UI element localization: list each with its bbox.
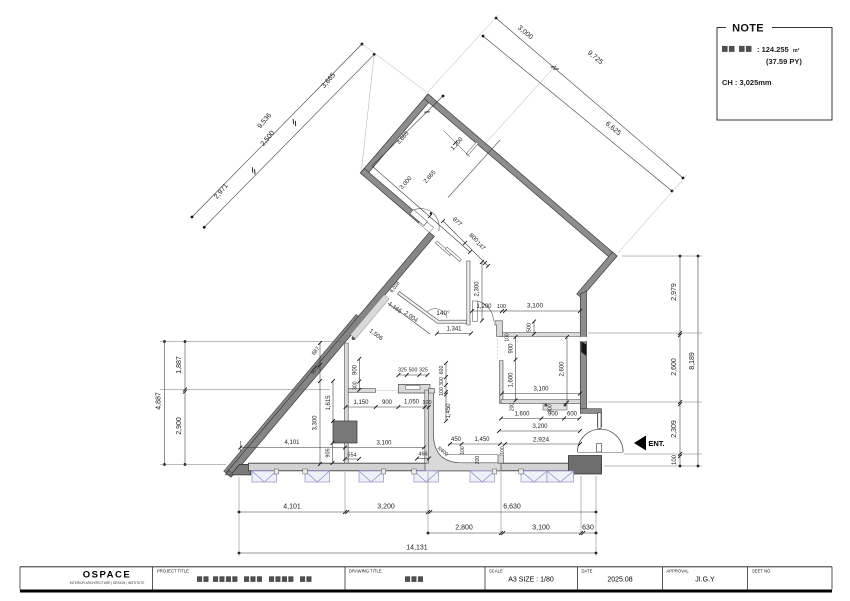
svg-text:1,150: 1,150 (353, 400, 369, 406)
svg-text:APPROVAL: APPROVAL (667, 569, 690, 574)
svg-text:3,300: 3,300 (313, 415, 319, 431)
svg-text:1,050: 1,050 (404, 400, 420, 406)
svg-text:1,600: 1,600 (514, 412, 530, 418)
svg-text:2025.08: 2025.08 (607, 577, 632, 584)
svg-text:900: 900 (548, 412, 559, 418)
svg-text:100: 100 (460, 446, 466, 455)
svg-text:3,100: 3,100 (376, 441, 392, 447)
svg-text:m²: m² (793, 48, 800, 54)
svg-text:500: 500 (409, 368, 418, 374)
svg-text:300: 300 (439, 377, 445, 386)
svg-text:3,200: 3,200 (532, 424, 548, 430)
svg-text:4,101: 4,101 (283, 504, 301, 511)
svg-text:100: 100 (672, 454, 678, 465)
svg-text:905: 905 (326, 448, 332, 457)
svg-text:6,630: 6,630 (503, 504, 521, 511)
svg-text:3,100: 3,100 (527, 303, 544, 310)
svg-text:CH : 3,025mm: CH : 3,025mm (722, 78, 772, 87)
svg-text:2,600: 2,600 (560, 361, 566, 377)
svg-text:325: 325 (398, 368, 407, 374)
svg-text:100: 100 (505, 333, 511, 342)
svg-text:300: 300 (353, 381, 359, 390)
svg-text:100: 100 (439, 387, 445, 396)
svg-text:1,200: 1,200 (476, 304, 492, 310)
svg-text:SCALE: SCALE (489, 569, 503, 574)
svg-text:4,101: 4,101 (284, 440, 300, 446)
svg-text:2,979: 2,979 (671, 283, 678, 301)
svg-text:325: 325 (419, 368, 428, 374)
svg-text:600: 600 (439, 366, 445, 375)
svg-text:DRAWING TITLE: DRAWING TITLE (349, 569, 382, 574)
svg-text:2,309: 2,309 (671, 420, 678, 438)
svg-text:SEET NO.: SEET NO. (752, 569, 771, 574)
svg-text:2,800: 2,800 (455, 525, 473, 532)
svg-text:(37.59 PY): (37.59 PY) (766, 57, 802, 66)
svg-text:4,887: 4,887 (156, 392, 163, 410)
svg-text:3,100: 3,100 (533, 387, 549, 393)
svg-text:200: 200 (510, 403, 516, 412)
svg-text:100: 100 (497, 304, 506, 310)
svg-text:JI.G.Y: JI.G.Y (695, 577, 715, 584)
svg-text:: 124.255: : 124.255 (757, 45, 789, 54)
svg-text:1,341: 1,341 (446, 327, 462, 333)
svg-text:100: 100 (500, 446, 506, 455)
svg-text:1,450: 1,450 (446, 403, 452, 419)
svg-text:2,600: 2,600 (671, 358, 678, 376)
svg-text:2,900: 2,900 (176, 417, 183, 435)
svg-text:NOTE: NOTE (732, 23, 764, 35)
svg-text:630: 630 (582, 525, 594, 532)
svg-text:600: 600 (567, 412, 578, 418)
svg-text:14,131: 14,131 (406, 545, 428, 552)
svg-text:1,450: 1,450 (474, 437, 490, 443)
svg-text:PROJECT TITLE: PROJECT TITLE (157, 569, 189, 574)
svg-text:200: 200 (475, 456, 481, 465)
svg-text:900: 900 (509, 343, 515, 354)
svg-text:2,924: 2,924 (533, 437, 550, 444)
svg-text:554: 554 (347, 453, 356, 459)
svg-text:450: 450 (451, 437, 462, 443)
svg-text:8,189: 8,189 (689, 352, 696, 370)
svg-text:500: 500 (527, 323, 533, 332)
svg-text:3,100: 3,100 (532, 525, 550, 532)
svg-text:900: 900 (353, 364, 359, 375)
svg-text:OSPACE: OSPACE (83, 570, 131, 581)
svg-text:DATE: DATE (582, 569, 593, 574)
svg-text:3,200: 3,200 (377, 504, 395, 511)
svg-text:INTERIOR ARCHITECTURE | DESIGN: INTERIOR ARCHITECTURE | DESIGN | INSTITU… (70, 581, 145, 585)
svg-text:100: 100 (422, 400, 431, 406)
svg-text:466: 466 (418, 452, 427, 458)
svg-text:1,615: 1,615 (326, 395, 332, 411)
svg-text:140°: 140° (436, 309, 450, 317)
svg-text:1,887: 1,887 (176, 356, 183, 374)
svg-text:900: 900 (382, 400, 393, 406)
svg-text:2,300: 2,300 (475, 281, 481, 297)
svg-text:ENT.: ENT. (648, 439, 664, 448)
svg-text:1,600: 1,600 (509, 372, 515, 388)
svg-text:A3 SIZE : 1/80: A3 SIZE : 1/80 (508, 577, 554, 584)
